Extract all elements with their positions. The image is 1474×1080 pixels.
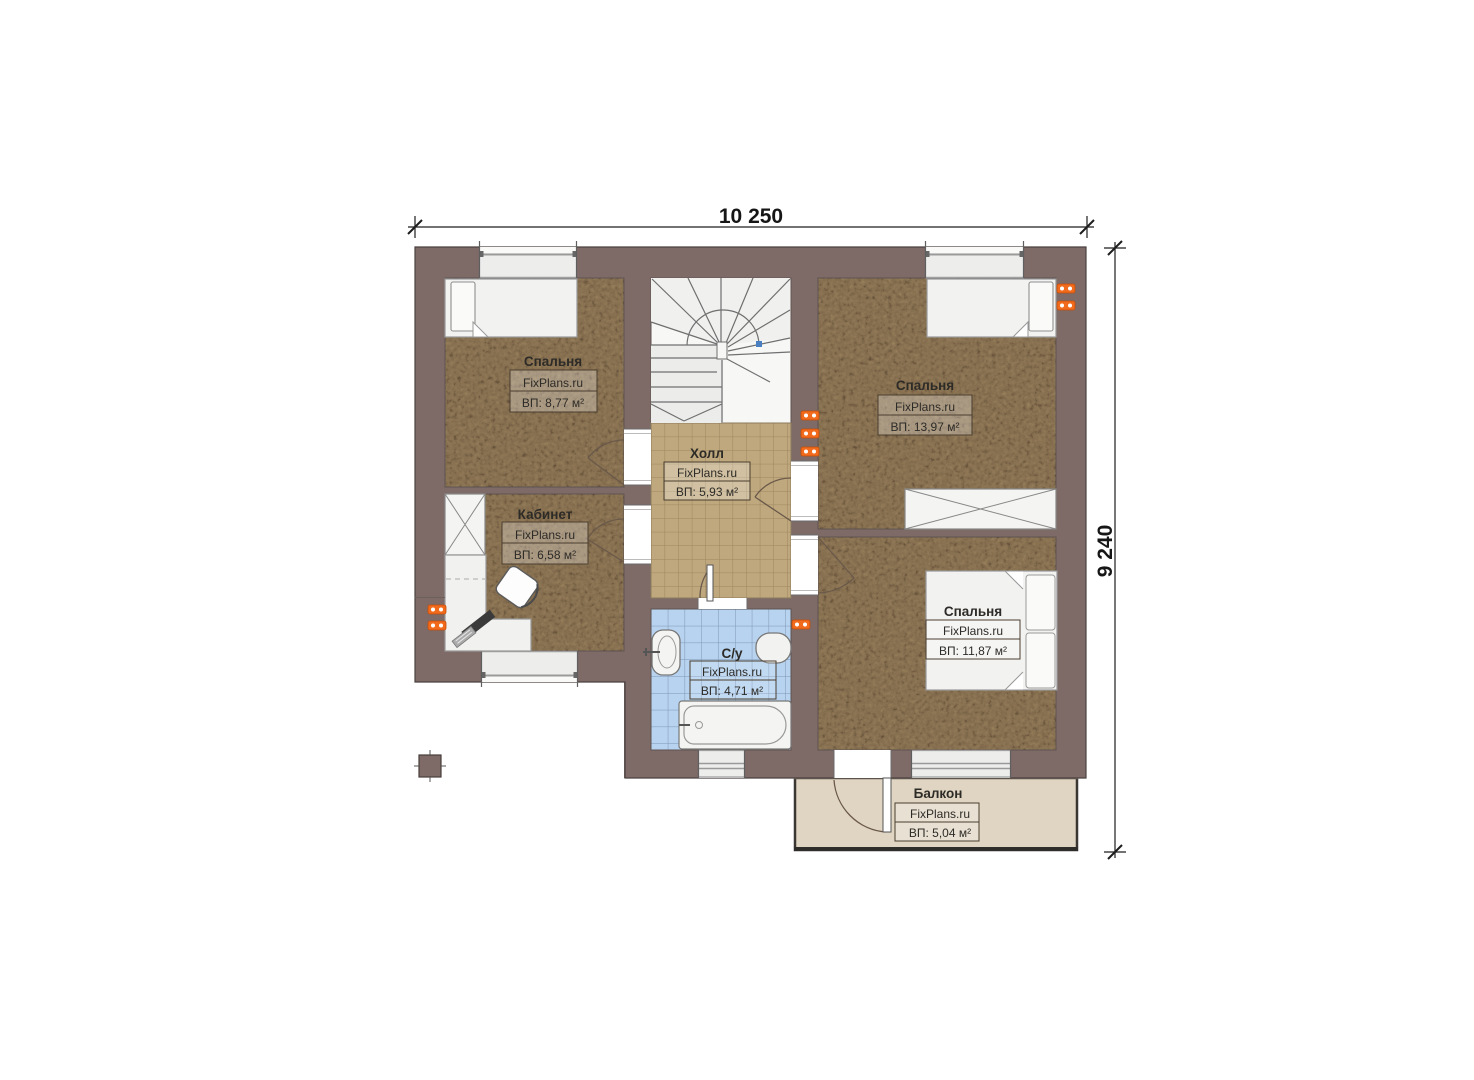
svg-text:Балкон: Балкон xyxy=(914,786,963,801)
svg-text:Спальня: Спальня xyxy=(944,604,1002,619)
svg-text:ВП: 4,71 м²: ВП: 4,71 м² xyxy=(701,684,763,698)
svg-text:ВП: 6,58 м²: ВП: 6,58 м² xyxy=(514,548,576,562)
svg-text:ВП: 5,04 м²: ВП: 5,04 м² xyxy=(909,826,971,840)
svg-text:FixPlans.ru: FixPlans.ru xyxy=(895,400,955,414)
svg-text:ВП: 5,93 м²: ВП: 5,93 м² xyxy=(676,485,738,499)
svg-text:FixPlans.ru: FixPlans.ru xyxy=(515,528,575,542)
svg-text:FixPlans.ru: FixPlans.ru xyxy=(702,665,762,679)
svg-text:С/у: С/у xyxy=(721,646,743,661)
svg-text:ВП: 11,87 м²: ВП: 11,87 м² xyxy=(939,644,1007,658)
svg-text:ВП: 13,97 м²: ВП: 13,97 м² xyxy=(891,420,960,434)
svg-text:FixPlans.ru: FixPlans.ru xyxy=(910,807,970,821)
svg-text:Спальня: Спальня xyxy=(524,354,582,369)
svg-text:ВП: 8,77 м²: ВП: 8,77 м² xyxy=(522,396,584,410)
svg-text:FixPlans.ru: FixPlans.ru xyxy=(943,624,1003,638)
svg-text:FixPlans.ru: FixPlans.ru xyxy=(677,466,737,480)
svg-text:FixPlans.ru: FixPlans.ru xyxy=(523,376,583,390)
svg-text:10 250: 10 250 xyxy=(719,205,783,228)
svg-text:Холл: Холл xyxy=(690,446,724,461)
svg-text:9 240: 9 240 xyxy=(1094,525,1117,578)
svg-text:Спальня: Спальня xyxy=(896,378,954,393)
svg-text:Кабинет: Кабинет xyxy=(518,507,573,522)
